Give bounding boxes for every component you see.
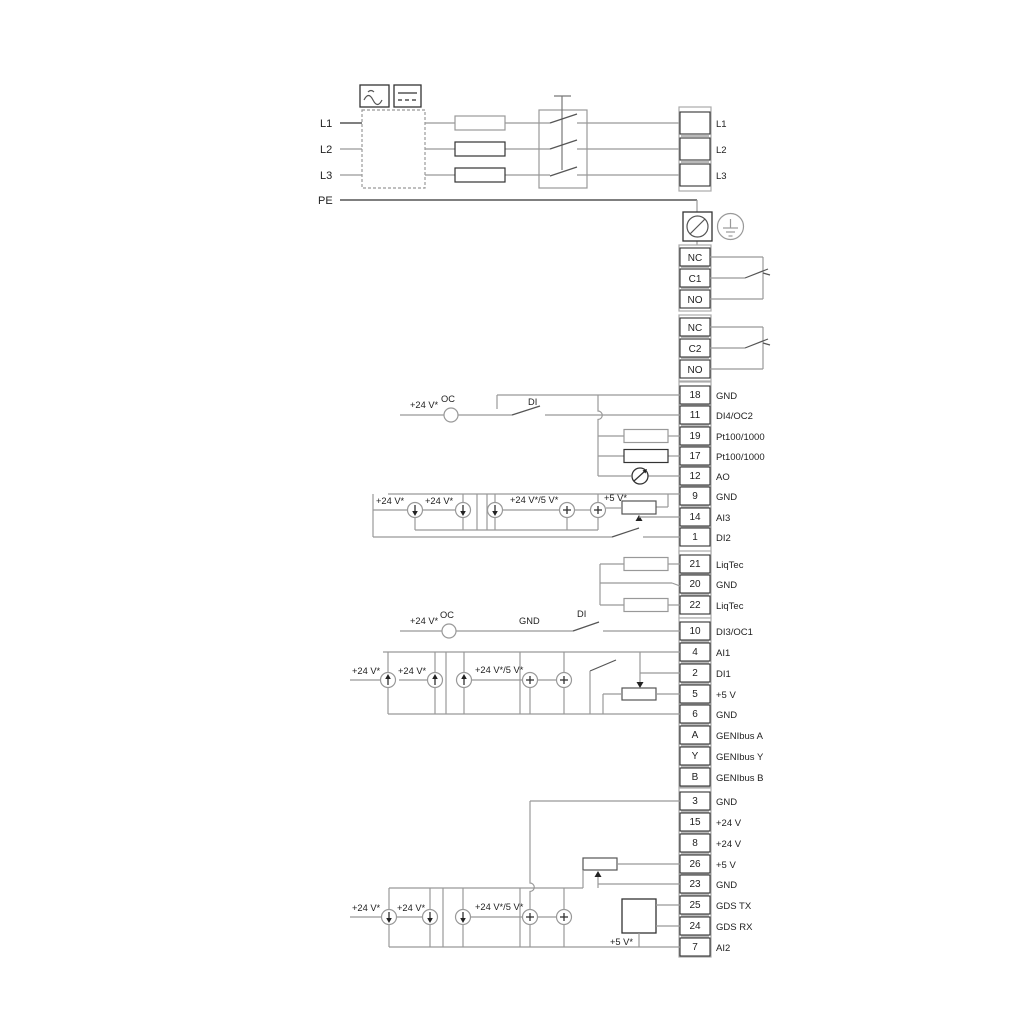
terminal-label: GENIbus B xyxy=(716,773,764,784)
ac-symbol-box xyxy=(360,85,389,107)
terminal-label: AI2 xyxy=(716,943,730,954)
terminal-label: C1 xyxy=(689,274,702,285)
pe-label: PE xyxy=(318,195,333,207)
terminal-number: 23 xyxy=(689,879,701,890)
relay1-block: NC C1 NO xyxy=(679,245,770,311)
fuse-l2 xyxy=(455,142,505,156)
plus24-annotation: +24 V* xyxy=(425,496,454,506)
plus5-annotation: +5 V* xyxy=(604,493,627,503)
terminal-number: 5 xyxy=(692,689,698,700)
terminal-label: LiqTec xyxy=(716,560,744,571)
terminal-label: GND xyxy=(716,880,737,891)
earth-ground-icon xyxy=(718,214,744,240)
terminal-label: GDS RX xyxy=(716,922,753,933)
phase-label-l2: L2 xyxy=(320,144,332,156)
terminal-label: GENIbus A xyxy=(716,731,764,742)
terminal-number: 1 xyxy=(692,532,698,543)
voltage-source-icon xyxy=(557,673,572,688)
terminal-number: B xyxy=(692,772,699,783)
terminal-number: 18 xyxy=(689,390,701,401)
current-source-icon xyxy=(381,673,396,688)
terminal-label: L1 xyxy=(716,119,727,130)
terminal-number: 26 xyxy=(689,859,701,870)
terminal-label: L2 xyxy=(716,145,727,156)
terminal-cell xyxy=(680,138,710,160)
wiring-diagram: L1 L2 L3 PE xyxy=(0,0,1024,1024)
terminal-number: 10 xyxy=(689,626,701,637)
voltage-source-icon xyxy=(523,910,538,925)
terminal-label: AI1 xyxy=(716,648,730,659)
phase-label-l3: L3 xyxy=(320,170,332,182)
current-source-icon xyxy=(382,910,397,925)
pe-screw-terminal xyxy=(683,212,712,241)
terminal-number: 9 xyxy=(692,491,698,502)
main3-wiring: +5 V* +24 V* +24 V* +24 V*/5 V* xyxy=(350,801,680,947)
plus24-annotation: +24 V* xyxy=(352,903,381,913)
plus24-annotation: +24 V* xyxy=(398,666,427,676)
liqtec-terminal-block: 21 20 22 LiqTec GND LiqTec xyxy=(600,551,744,618)
potentiometer-ai3 xyxy=(622,501,656,514)
relay1-contact xyxy=(710,257,770,299)
di-annotation: DI xyxy=(577,609,586,619)
relay2-contact xyxy=(710,327,770,369)
relay2-block: NC C2 NO xyxy=(679,315,770,381)
terminal-label: Pt100/1000 xyxy=(716,452,765,463)
terminal-label: +5 V xyxy=(716,860,736,871)
terminal-label: DI1 xyxy=(716,669,731,680)
terminal-number: 19 xyxy=(689,431,701,442)
terminal-number: Y xyxy=(692,751,699,762)
terminal-number: 8 xyxy=(692,838,698,849)
current-source-icon xyxy=(423,910,438,925)
oc-circle xyxy=(442,624,456,638)
terminal-label: +24 V xyxy=(716,839,742,850)
terminal-label: DI3/OC1 xyxy=(716,627,753,638)
terminal-number: 15 xyxy=(689,817,701,828)
terminal-label: DI2 xyxy=(716,533,731,544)
voltage-source-icon xyxy=(560,503,575,518)
plus24-5-annotation: +24 V*/5 V* xyxy=(510,495,559,505)
terminal-label: NO xyxy=(688,295,703,306)
wiper-arrow xyxy=(595,871,602,877)
voltage-source-icon xyxy=(523,673,538,688)
wiring-diagram-page: L1 L2 L3 PE xyxy=(0,0,1024,1024)
terminal-label: GND xyxy=(716,797,737,808)
main1-wiring: DI +24 V* OC +24 V* +24 V* xyxy=(373,394,680,537)
terminal-cell xyxy=(680,112,710,134)
liqtec-sensor-1 xyxy=(624,558,668,571)
terminal-number: 2 xyxy=(692,668,698,679)
terminal-label: NC xyxy=(688,323,702,334)
terminal-label: NO xyxy=(688,365,703,376)
terminal-label: C2 xyxy=(689,344,702,355)
dc-symbol-box xyxy=(394,85,421,107)
terminal-label: AO xyxy=(716,472,730,483)
terminal-number: 6 xyxy=(692,709,698,720)
current-source-icon xyxy=(456,503,471,518)
current-source-icon xyxy=(457,673,472,688)
terminal-label: GND xyxy=(716,580,737,591)
plus24-annotation: +24 V* xyxy=(352,666,381,676)
current-source-icon xyxy=(408,503,423,518)
current-source-icon xyxy=(456,910,471,925)
main2-wiring: +24 V* OC GND DI +24 V* +24 V* +24 V*/5 … xyxy=(350,609,680,714)
pt100-resistor-1 xyxy=(624,430,668,443)
terminal-number: 24 xyxy=(689,921,701,932)
terminal-cell xyxy=(680,164,710,186)
terminal-label: NC xyxy=(688,253,702,264)
phase-wires xyxy=(340,123,680,175)
fuse-l1 xyxy=(455,116,505,130)
plus5-annotation: +5 V* xyxy=(610,937,633,947)
liqtec-sensor-2 xyxy=(624,599,668,612)
terminal-number: 25 xyxy=(689,900,701,911)
plus24-annotation: +24 V* xyxy=(410,400,439,410)
terminal-number: 21 xyxy=(689,559,701,570)
oc-annotation: OC xyxy=(441,394,455,404)
terminal-label: GND xyxy=(716,492,737,503)
pt100-resistor-2 xyxy=(624,450,668,463)
terminal-label: GND xyxy=(716,710,737,721)
terminal-label: GENIbus Y xyxy=(716,752,764,763)
terminal-label: DI4/OC2 xyxy=(716,411,753,422)
power-terminal-block: L1 L2 L3 xyxy=(679,107,727,191)
analog-output-meter-icon xyxy=(632,468,648,484)
terminal-label: AI3 xyxy=(716,513,730,524)
oc-circle xyxy=(444,408,458,422)
terminal-number: 11 xyxy=(690,410,701,421)
plus24-annotation: +24 V* xyxy=(397,903,426,913)
terminal-number: 7 xyxy=(692,942,698,953)
terminal-label: GND xyxy=(716,391,737,402)
phase-label-l1: L1 xyxy=(320,118,332,130)
terminal-label: L3 xyxy=(716,171,727,182)
di-annotation: DI xyxy=(528,397,537,407)
plus24-5-annotation: +24 V*/5 V* xyxy=(475,665,524,675)
terminal-number: A xyxy=(692,730,699,741)
terminal-number: 17 xyxy=(689,451,701,462)
terminal-label: +24 V xyxy=(716,818,742,829)
gds-sensor-box xyxy=(622,899,656,933)
plus24-annotation: +24 V* xyxy=(376,496,405,506)
filter-dashed-box xyxy=(362,110,425,188)
terminal-number: 14 xyxy=(689,512,701,523)
terminal-label: LiqTec xyxy=(716,601,744,612)
potentiometer-ai1 xyxy=(622,688,656,700)
main3-terminal-block: 3 15 8 26 23 25 24 7 GND +24 V +24 V +5 … xyxy=(679,788,753,957)
main2-terminal-block: 10 4 2 5 6 A Y B DI3/OC1 AI1 DI1 +5 V GN… xyxy=(679,618,764,787)
main1-terminal-block: 18 11 19 17 12 9 14 1 GND DI4/OC2 Pt100/… xyxy=(679,382,765,553)
current-source-icon xyxy=(428,673,443,688)
potentiometer-ai2 xyxy=(583,858,617,870)
terminal-number: 22 xyxy=(689,600,701,611)
wiper-arrow xyxy=(637,682,644,688)
main-switch xyxy=(539,96,587,188)
voltage-source-icon xyxy=(557,910,572,925)
liqtec-wiring xyxy=(600,558,680,612)
terminal-number: 12 xyxy=(689,471,701,482)
plus24-annotation: +24 V* xyxy=(410,616,439,626)
terminal-label: Pt100/1000 xyxy=(716,432,765,443)
terminal-label: GDS TX xyxy=(716,901,752,912)
oc-annotation: OC xyxy=(440,610,454,620)
terminal-number: 4 xyxy=(692,647,698,658)
voltage-source-icon xyxy=(591,503,606,518)
pe-wire xyxy=(340,200,697,248)
plus24-5-annotation: +24 V*/5 V* xyxy=(475,902,524,912)
terminal-number: 20 xyxy=(689,579,701,590)
current-source-icon xyxy=(488,503,503,518)
terminal-label: +5 V xyxy=(716,690,736,701)
terminal-number: 3 xyxy=(692,796,698,807)
fuse-l3 xyxy=(455,168,505,182)
gnd-annotation: GND xyxy=(519,616,540,626)
